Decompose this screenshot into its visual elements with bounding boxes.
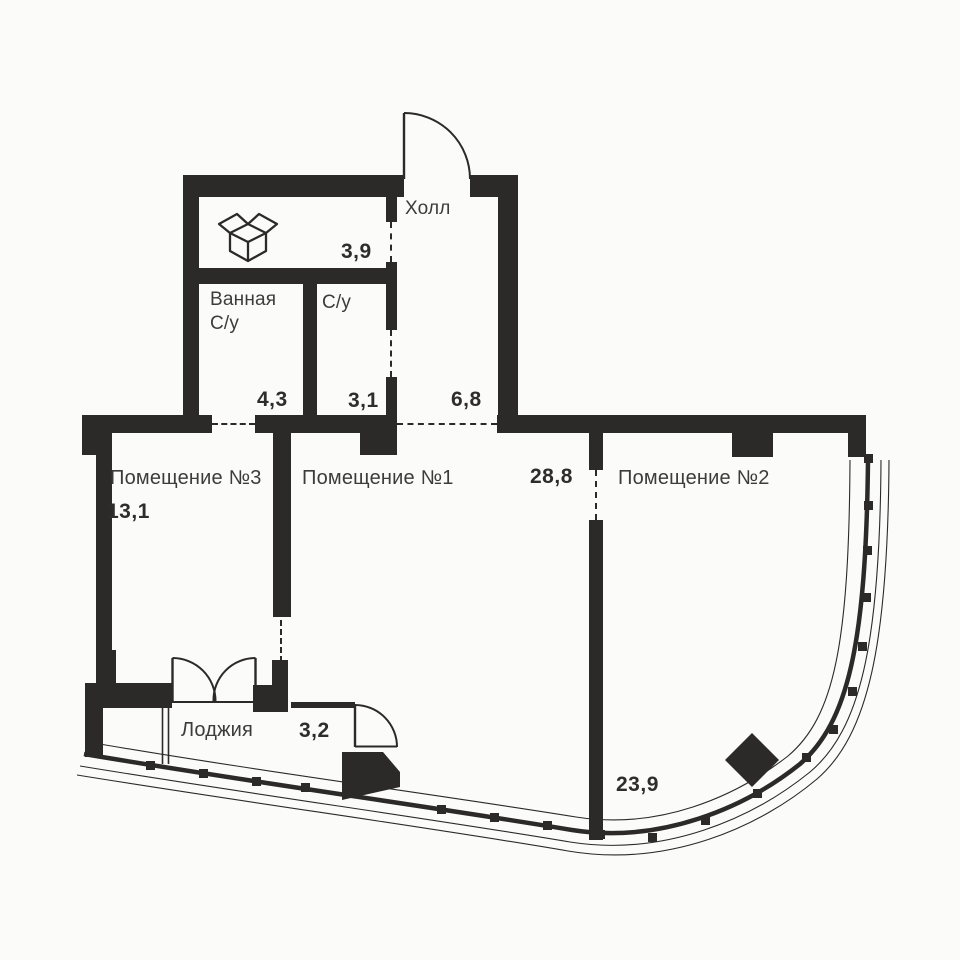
room-label-loggia: Лоджия <box>181 719 253 741</box>
column-diamond <box>725 733 779 787</box>
room-area-loggia: 3,2 <box>299 719 330 743</box>
loggia-door <box>355 705 397 747</box>
entrance-door <box>404 113 470 179</box>
loggia-door-arc <box>355 705 397 747</box>
room-area-room2: 23,9 <box>616 773 659 797</box>
room-label-wc: С/у <box>322 293 351 314</box>
room-area-hall: 6,8 <box>451 388 482 412</box>
room-area-room3: 13,1 <box>107 500 150 524</box>
room-label-room2: Помещение №2 <box>618 467 770 489</box>
room-area-room1: 28,8 <box>530 465 573 489</box>
facade-outer-line-1 <box>80 460 881 845</box>
room-label-bathroom-line2: С/у <box>210 314 239 335</box>
french-door-right-arc <box>213 658 255 701</box>
facade-outer-line-2 <box>77 460 889 855</box>
floor-plan: Холл 3,9 Ванная С/у 4,3 С/у 3,1 6,8 Поме… <box>0 0 960 960</box>
room-label-bathroom-line1: Ванная <box>210 290 276 311</box>
room-label-hall: Холл <box>405 199 451 220</box>
french-doors <box>172 658 256 702</box>
open-box-icon <box>219 214 277 261</box>
room-area-bathroom: 4,3 <box>257 388 288 412</box>
entrance-door-arc <box>404 113 470 179</box>
room-label-room1: Помещение №1 <box>302 467 454 489</box>
french-door-left-arc <box>173 658 216 701</box>
facade-mullions <box>146 454 873 842</box>
room-area-storage: 3,9 <box>341 240 372 264</box>
room-area-wc: 3,1 <box>348 389 379 413</box>
room-label-room3: Помещение №3 <box>110 467 262 489</box>
column-chamfered <box>342 752 400 800</box>
